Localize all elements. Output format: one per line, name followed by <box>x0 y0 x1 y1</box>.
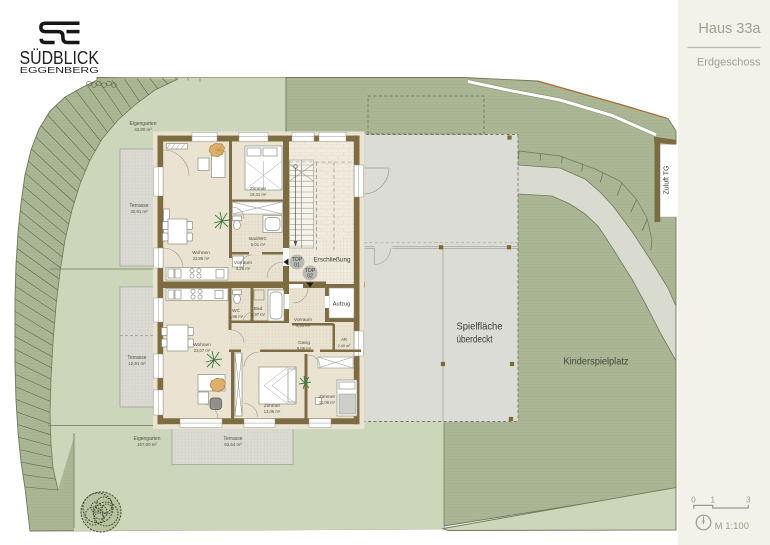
svg-text:32,91 m²: 32,91 m² <box>130 209 148 214</box>
svg-text:Kinderspielplatz: Kinderspielplatz <box>564 357 629 368</box>
svg-text:3,97 m²: 3,97 m² <box>251 312 266 317</box>
svg-text:3: 3 <box>746 495 751 504</box>
svg-text:9,86 m²: 9,86 m² <box>297 346 312 351</box>
svg-text:Erdgeschoss: Erdgeschoss <box>697 57 761 69</box>
svg-text:Zuluft TG: Zuluft TG <box>664 165 671 194</box>
svg-text:4,26 m²: 4,26 m² <box>236 266 251 271</box>
svg-text:63,64 m²: 63,64 m² <box>224 442 242 447</box>
svg-text:5,01 m²: 5,01 m² <box>251 242 266 247</box>
svg-text:1,96 m²: 1,96 m² <box>229 314 244 319</box>
svg-text:Haus 33a: Haus 33a <box>698 21 761 37</box>
svg-text:überdeckt: überdeckt <box>457 335 493 346</box>
svg-text:M 1:100: M 1:100 <box>715 521 749 532</box>
svg-text:02: 02 <box>307 274 313 280</box>
svg-text:11,06 m²: 11,06 m² <box>319 400 336 405</box>
svg-text:43,80 m²: 43,80 m² <box>134 127 152 132</box>
svg-text:23,85 m²: 23,85 m² <box>193 256 210 261</box>
svg-text:13,06 m²: 13,06 m² <box>264 409 281 414</box>
svg-text:2,40 m²: 2,40 m² <box>338 344 352 348</box>
svg-text:01: 01 <box>294 263 300 269</box>
svg-text:AR: AR <box>341 337 347 342</box>
svg-text:1: 1 <box>710 495 715 504</box>
svg-text:167,00 m²: 167,00 m² <box>137 442 157 447</box>
svg-text:Aufzug: Aufzug <box>333 302 350 308</box>
svg-text:23,07 m²: 23,07 m² <box>194 348 211 353</box>
svg-text:12,91 m²: 12,91 m² <box>128 361 146 366</box>
svg-text:Erschließung: Erschließung <box>314 257 351 264</box>
svg-text:4,31 m²: 4,31 m² <box>296 323 311 328</box>
svg-text:Spielfläche: Spielfläche <box>457 322 503 333</box>
svg-text:0: 0 <box>691 495 696 504</box>
svg-text:EGGENBERG: EGGENBERG <box>20 66 99 75</box>
svg-text:15,31 m²: 15,31 m² <box>250 192 267 197</box>
